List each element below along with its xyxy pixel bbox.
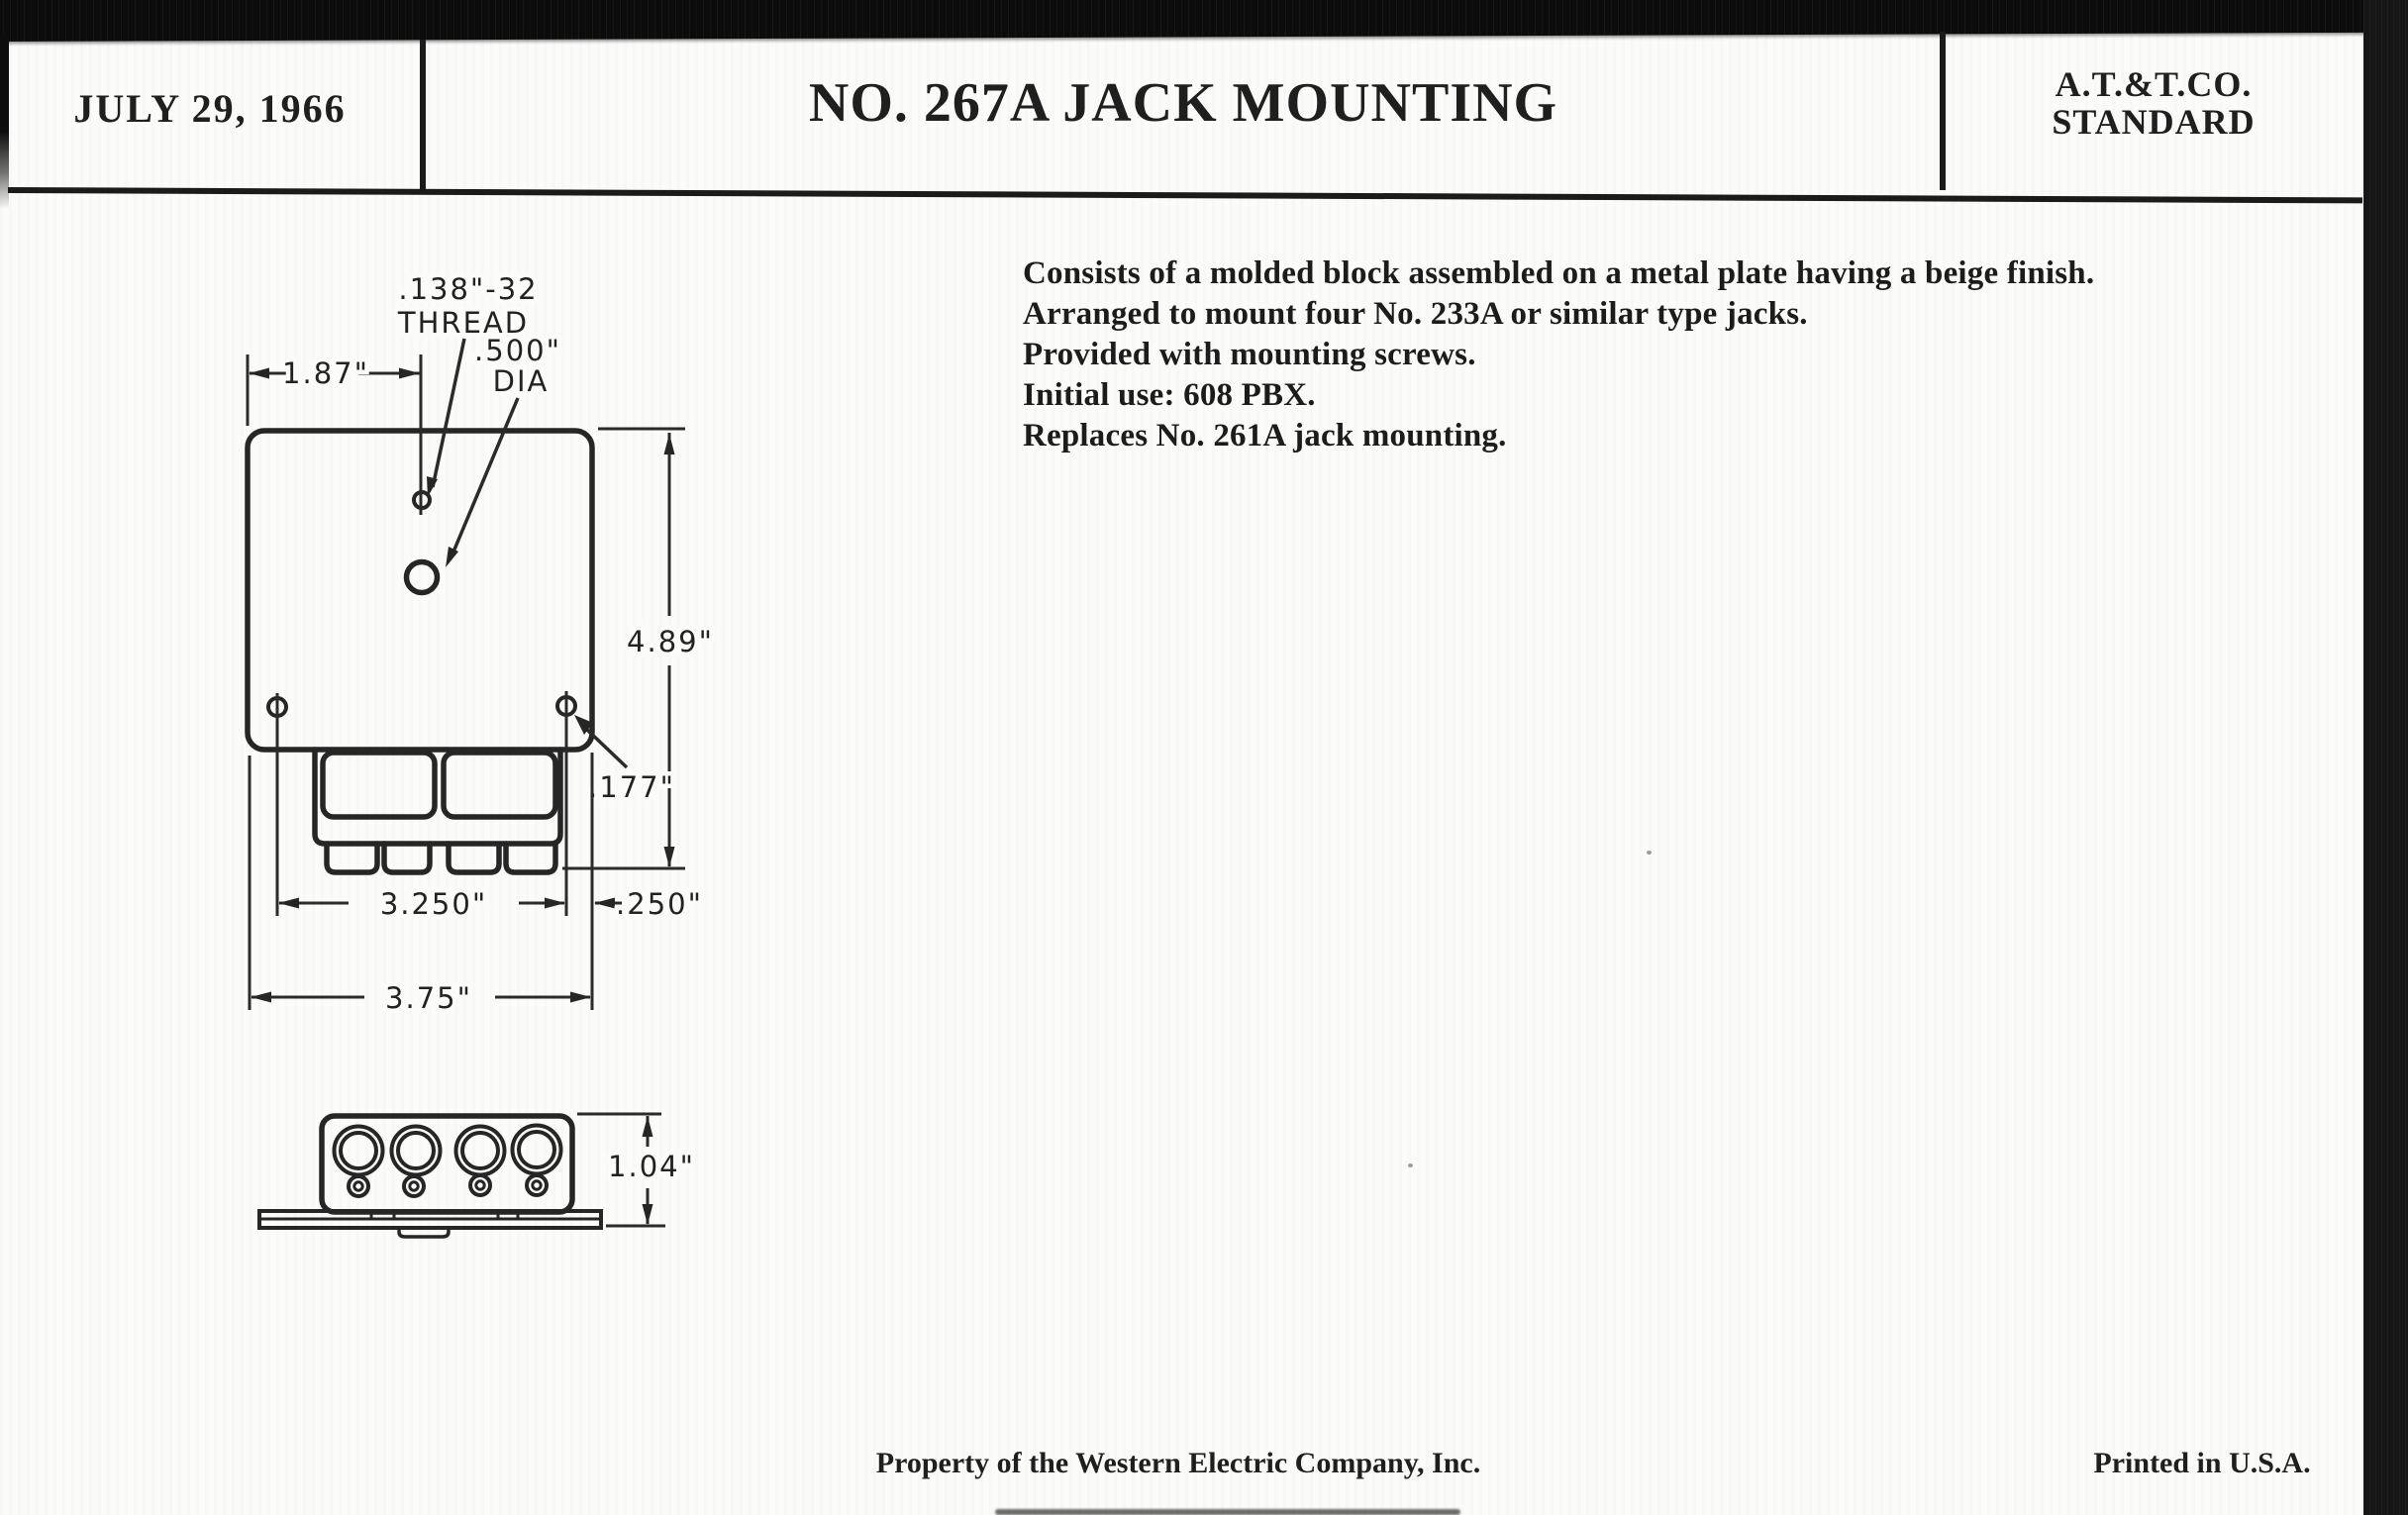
dimension-3-75: 3.75" (250, 753, 592, 1015)
dia-label-line2: DIA (493, 364, 550, 398)
dim-plate-width-label: 3.75" (385, 981, 472, 1015)
property-note: Property of the Western Electric Company… (733, 1447, 1624, 1480)
jack-bushings (335, 1126, 561, 1175)
large-hole (407, 562, 438, 593)
dim-hole-offset-label: 1.87" (282, 356, 369, 390)
dimension-1-87: 1.87" (248, 354, 421, 515)
small-bushings (349, 1175, 547, 1196)
block-tab (506, 844, 555, 872)
block-tab (327, 844, 377, 872)
standard-sheet-page: JULY 29, 1966 NO. 267A JACK MOUNTING A.T… (0, 0, 2408, 1515)
printed-note: Printed in U.S.A. (2004, 1447, 2400, 1480)
callout-dia: .500" DIA (446, 334, 561, 567)
thread-label-line1: .138"-32 (398, 272, 538, 306)
dia-label-line1: .500" (474, 334, 561, 367)
plate-edge (259, 1211, 601, 1237)
block-tab (449, 844, 499, 872)
jack-opening-right (444, 753, 555, 817)
dim-screw-hole-label: .177" (588, 770, 675, 804)
dimension-250: .250" (594, 887, 703, 921)
jack-opening-left (323, 753, 435, 817)
dim-height-label: 4.89" (627, 625, 714, 658)
dim-edge-margin-label: .250" (616, 887, 703, 921)
dim-side-height-label: 1.04" (608, 1150, 695, 1183)
jack-block-outline (315, 750, 560, 844)
side-view: 1.04" (259, 1114, 695, 1237)
block-tab (384, 844, 430, 872)
dim-block-width-label: 3.250" (380, 887, 487, 921)
technical-drawing: 1.87" .138"-32 THREAD .500" DIA 4.89" (0, 0, 2408, 1515)
front-view: 1.87" .138"-32 THREAD .500" DIA 4.89" (248, 272, 714, 1015)
